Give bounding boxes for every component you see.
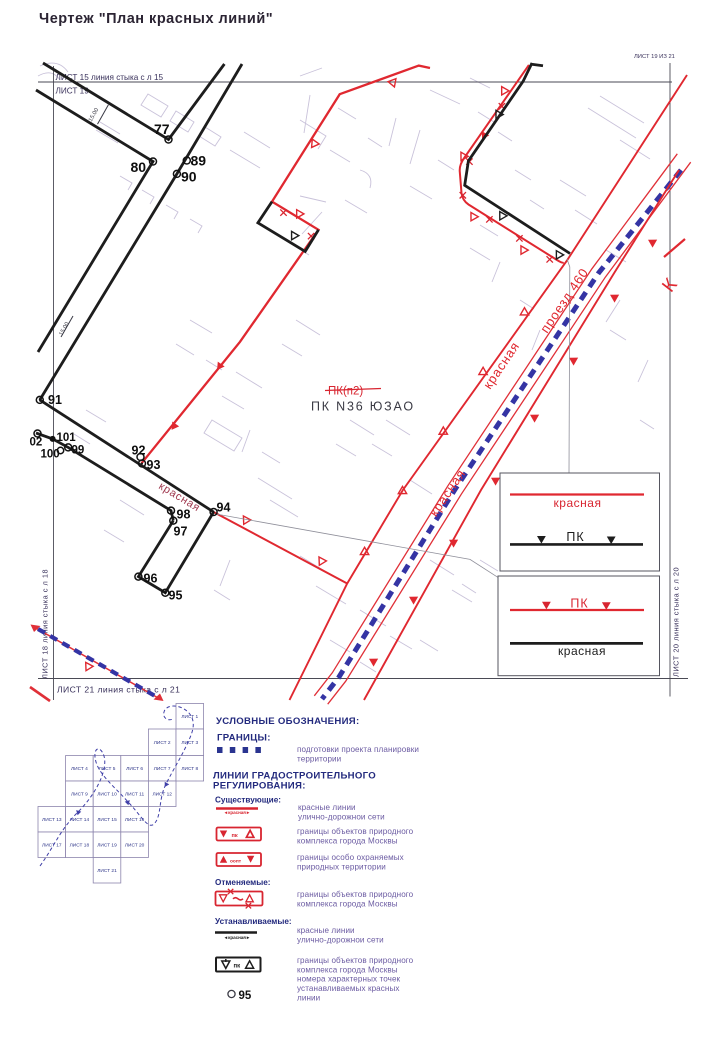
svg-text:ПК(п2): ПК(п2) — [328, 386, 363, 398]
svg-text:устанавливаемых красных: устанавливаемых красных — [297, 984, 400, 993]
svg-text:ЛИСТ 4: ЛИСТ 4 — [71, 766, 88, 772]
svg-text:ЛИСТ 6: ЛИСТ 6 — [126, 766, 143, 772]
svg-text:ПК: ПК — [566, 530, 584, 544]
svg-text:90: 90 — [181, 169, 197, 185]
svg-text:96: 96 — [144, 572, 158, 586]
svg-text:95: 95 — [239, 990, 252, 1002]
svg-text:Чертеж "План красных линий": Чертеж "План красных линий" — [39, 11, 273, 27]
svg-text:ЛИСТ 21: ЛИСТ 21 — [97, 868, 117, 874]
svg-text:89: 89 — [191, 153, 207, 169]
svg-text:РЕГУЛИРОВАНИЯ:: РЕГУЛИРОВАНИЯ: — [213, 781, 306, 792]
svg-text:ЛИСТ 9: ЛИСТ 9 — [71, 792, 88, 798]
svg-text:ЛИСТ 21 линия стыка с л 21: ЛИСТ 21 линия стыка с л 21 — [57, 685, 180, 695]
svg-text:95: 95 — [169, 589, 183, 603]
svg-text:Отменяемые:: Отменяемые: — [215, 878, 271, 887]
svg-text:ЛИСТ 18: ЛИСТ 18 — [70, 843, 90, 849]
svg-text:101: 101 — [57, 432, 77, 444]
svg-text:◄красная►: ◄красная► — [224, 935, 251, 940]
svg-text:ПК N36 ЮЗАО: ПК N36 ЮЗАО — [311, 400, 415, 414]
svg-text:ЛИСТ 19 ИЗ 21: ЛИСТ 19 ИЗ 21 — [634, 54, 675, 60]
svg-text:пк: пк — [232, 833, 238, 839]
svg-text:улично-дорожнои сети: улично-дорожнои сети — [297, 936, 384, 945]
svg-text:улично-дорожнои сети: улично-дорожнои сети — [298, 813, 385, 822]
svg-text:оопт: оопт — [230, 860, 242, 865]
svg-text:97: 97 — [174, 525, 188, 539]
svg-text:границы особо охраняемых: границы особо охраняемых — [297, 853, 404, 862]
svg-text:ЛИСТ 3: ЛИСТ 3 — [181, 740, 198, 746]
svg-text:02: 02 — [30, 437, 43, 449]
svg-text:ЛИСТ 13: ЛИСТ 13 — [42, 817, 62, 823]
svg-text:91: 91 — [48, 393, 62, 407]
svg-text:ЛИСТ 7: ЛИСТ 7 — [154, 766, 171, 772]
svg-text:ГРАНИЦЫ:: ГРАНИЦЫ: — [217, 733, 271, 744]
svg-text:УСЛОВНЫЕ ОБОЗНАЧЕНИЯ:: УСЛОВНЫЕ ОБОЗНАЧЕНИЯ: — [216, 716, 359, 727]
svg-text:ЛИСТ 5: ЛИСТ 5 — [99, 766, 116, 772]
svg-text:ЛИСТ 10: ЛИСТ 10 — [97, 792, 117, 798]
svg-text:ЛИСТ 17: ЛИСТ 17 — [42, 843, 62, 849]
svg-text:линии: линии — [297, 994, 320, 1003]
svg-text:92: 92 — [132, 444, 146, 458]
svg-text:пк: пк — [234, 964, 241, 970]
svg-text:ЛИСТ 18 линия стыка с л 18: ЛИСТ 18 линия стыка с л 18 — [41, 569, 50, 679]
svg-text:Существующие:: Существующие: — [215, 796, 281, 805]
svg-text:красная: красная — [554, 496, 602, 510]
svg-text:ЛИСТ 15: ЛИСТ 15 — [97, 817, 117, 823]
svg-text:комплекса города Москвы: комплекса города Москвы — [297, 837, 398, 846]
svg-text:границы объектов природного: границы объектов природного — [297, 890, 414, 899]
svg-text:территории: территории — [297, 755, 341, 764]
svg-text:номера характерных точек: номера характерных точек — [297, 975, 401, 984]
svg-text:красные линии: красные линии — [297, 926, 355, 935]
svg-text:77: 77 — [154, 121, 170, 137]
svg-text:ЛИСТ 11: ЛИСТ 11 — [125, 792, 144, 798]
svg-text:ПК: ПК — [570, 597, 588, 611]
svg-text:красная: красная — [558, 644, 606, 658]
svg-text:ЛИСТ 19: ЛИСТ 19 — [97, 843, 117, 849]
svg-text:ЛИСТ 20: ЛИСТ 20 — [125, 843, 145, 849]
svg-text:комплекса города Москвы: комплекса города Москвы — [297, 966, 398, 975]
svg-text:красные линии: красные линии — [298, 803, 356, 812]
svg-text:границы объектов природного: границы объектов природного — [297, 827, 414, 836]
svg-text:подготовки проекта планировки: подготовки проекта планировки — [297, 745, 419, 754]
svg-text:природных территории: природных территории — [297, 863, 386, 872]
svg-text:93: 93 — [147, 458, 161, 472]
svg-text:границы объектов природного: границы объектов природного — [297, 956, 414, 965]
svg-text:комплекса города Москвы: комплекса города Москвы — [297, 900, 398, 909]
svg-text:◄красная►: ◄красная► — [224, 810, 251, 815]
svg-text:ЛИСТ 2: ЛИСТ 2 — [154, 740, 171, 746]
svg-text:Устанавливаемые:: Устанавливаемые: — [215, 917, 292, 926]
svg-text:ЛИСТ 8: ЛИСТ 8 — [181, 766, 198, 772]
svg-text:ЛИСТ 20 линия стыка с л 20: ЛИСТ 20 линия стыка с л 20 — [672, 567, 681, 677]
svg-text:99: 99 — [72, 445, 85, 457]
svg-text:80: 80 — [131, 159, 147, 175]
svg-text:94: 94 — [217, 501, 231, 515]
svg-text:100: 100 — [41, 449, 60, 461]
